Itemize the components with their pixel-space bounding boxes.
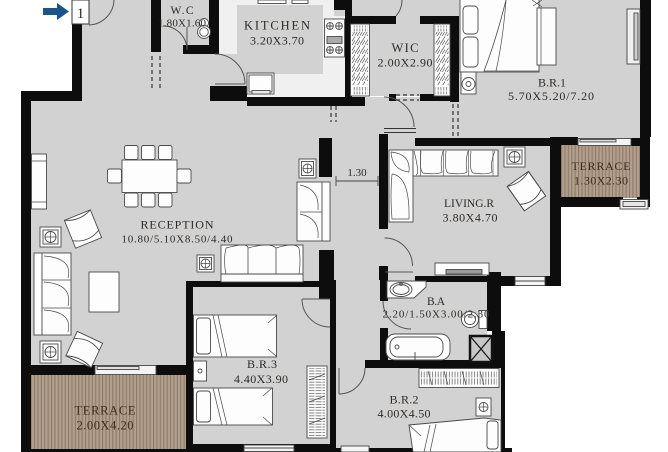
svg-text:2.00X4.20: 2.00X4.20 <box>77 419 134 433</box>
svg-text:1.30X2.30: 1.30X2.30 <box>574 174 628 188</box>
svg-text:TERRACE: TERRACE <box>572 159 631 173</box>
svg-text:1.80X1.60: 1.80X1.60 <box>158 18 207 30</box>
svg-text:1: 1 <box>77 6 85 22</box>
svg-text:B.A: B.A <box>427 296 446 308</box>
svg-text:2.00X2.90: 2.00X2.90 <box>378 56 433 70</box>
svg-text:LIVING.R: LIVING.R <box>444 198 494 210</box>
svg-text:2.20/1.50X3.00/2.30: 2.20/1.50X3.00/2.30 <box>383 309 491 321</box>
svg-text:3.20X3.70: 3.20X3.70 <box>250 34 304 48</box>
svg-text:W.C: W.C <box>171 5 194 17</box>
svg-text:WIC: WIC <box>392 41 419 55</box>
svg-text:1.30: 1.30 <box>347 167 367 179</box>
svg-text:RECEPTION: RECEPTION <box>141 218 214 232</box>
svg-text:4.40X3.90: 4.40X3.90 <box>234 372 288 386</box>
svg-text:10.80/5.10X8.50/4.40: 10.80/5.10X8.50/4.40 <box>122 234 234 246</box>
svg-text:3.80X4.70: 3.80X4.70 <box>443 211 498 225</box>
svg-text:B.R.3: B.R.3 <box>247 357 277 371</box>
svg-text:B.R.1: B.R.1 <box>538 76 566 90</box>
svg-text:5.70X5.20/7.20: 5.70X5.20/7.20 <box>508 89 594 103</box>
svg-text:B.R.2: B.R.2 <box>390 393 419 407</box>
svg-text:4.00X4.50: 4.00X4.50 <box>378 407 431 421</box>
svg-text:KITCHEN: KITCHEN <box>244 19 310 33</box>
svg-text:TERRACE: TERRACE <box>75 404 136 418</box>
